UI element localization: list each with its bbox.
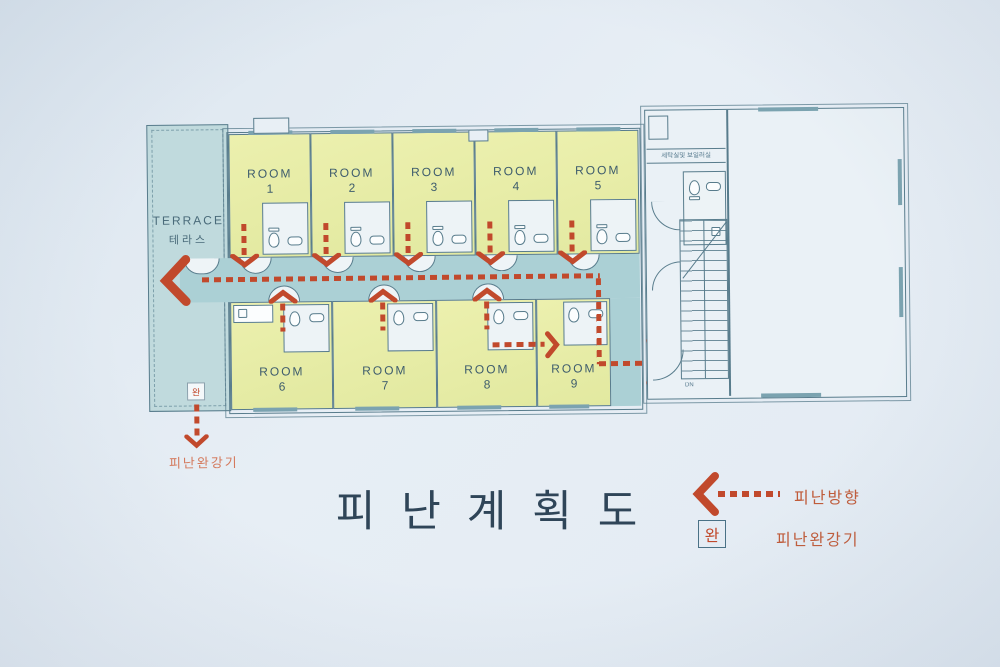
sink-icon (533, 234, 548, 243)
toilet-icon (514, 230, 525, 245)
toilet-icon (689, 180, 700, 195)
toilet-tank-icon (268, 228, 279, 232)
window (899, 267, 904, 317)
toilet-tank-icon (432, 226, 443, 230)
utility-closet (648, 115, 668, 139)
evacuation-path-turn (599, 361, 645, 366)
room-3-exit-arrow-icon (394, 252, 424, 266)
legend-descender-label: 피난완강기 (776, 526, 860, 550)
sink-icon (287, 236, 302, 245)
descender-device-box: 완 (187, 382, 205, 400)
room-1-number: 1 (230, 181, 310, 197)
toilet-icon (493, 309, 504, 324)
sink-icon (615, 233, 630, 242)
room-1-label: ROOM (230, 166, 310, 182)
descender-device-symbol: 완 (192, 385, 200, 398)
sink-icon (413, 312, 428, 321)
toilet-tank-icon (514, 225, 525, 229)
window (549, 404, 589, 408)
room-7-number: 7 (334, 378, 436, 394)
room-2-bathroom (344, 201, 391, 253)
utility-room-label: 세탁실및 보일러실 (647, 148, 726, 164)
legend-direction-label: 피난방향 (794, 484, 861, 508)
room-2-number: 2 (312, 180, 392, 196)
window (494, 128, 538, 132)
room-6-label: ROOM (232, 364, 332, 380)
window (898, 159, 902, 205)
room-2-exit-arrow-icon (312, 253, 342, 267)
legend-direction-arrow-tail (718, 491, 780, 497)
descender-arrow-down-icon (184, 434, 210, 448)
evacuation-plan-photo: { "title": "피 난 계 획 도", "plan": { "terra… (0, 0, 1000, 667)
toilet-icon (596, 229, 607, 244)
room-5-exit-path (569, 220, 574, 252)
legend-direction-arrow-icon (692, 472, 720, 516)
room-7-bathroom (387, 303, 434, 351)
window (253, 407, 297, 411)
room-1-bathroom (262, 202, 309, 254)
toilet-icon (393, 310, 404, 325)
room-8-exit-arrow-icon (472, 287, 502, 301)
room-3-label: ROOM (394, 165, 474, 181)
room-2-exit-path (323, 223, 328, 255)
room-8-exit-path (484, 301, 489, 329)
roof-notch (468, 129, 488, 141)
evacuation-arrow-small-right-icon (544, 331, 560, 359)
toilet-tank-icon (596, 224, 607, 228)
sink-icon (513, 311, 528, 320)
room-4-number: 4 (476, 179, 556, 195)
room-6-number: 6 (232, 379, 332, 395)
room-5-exit-arrow-icon (558, 250, 588, 264)
window (761, 393, 821, 398)
descender-device-label: 피난완강기 (144, 452, 264, 472)
stairs-down-label: DN (685, 382, 694, 388)
room-8-number: 8 (438, 377, 536, 393)
toilet-tank-icon (689, 196, 700, 200)
legend-descender-box: 완 (698, 520, 726, 548)
room-8-label: ROOM (438, 362, 536, 378)
toilet-icon (568, 307, 579, 322)
room-9-number: 9 (538, 376, 610, 392)
room-1-exit-arrow-icon (230, 254, 260, 268)
room-5-bathroom (590, 199, 637, 251)
room-6-bathroom (283, 304, 330, 352)
descender-path (194, 404, 199, 436)
room-4-exit-arrow-icon (476, 251, 506, 265)
window (758, 107, 818, 112)
terrace-label-ko: 테라스 (148, 231, 228, 248)
kitchen-sink-icon (238, 309, 247, 318)
room-6-exit-arrow-icon (268, 289, 298, 303)
window (355, 406, 399, 410)
staircase (679, 219, 729, 379)
evacuation-arrow-left-icon (158, 254, 193, 306)
floor-plan: TERRACE 테라스 ROOM 1 ROOM 2 R (138, 99, 912, 479)
toilet-icon (268, 233, 279, 248)
toilet-icon (350, 232, 361, 247)
room-5-label: ROOM (558, 163, 638, 179)
window (330, 130, 374, 134)
room-3-bathroom (426, 201, 473, 253)
page-title: 피 난 계 획 도 (290, 477, 690, 539)
room-5-number: 5 (558, 178, 638, 194)
room-3-number: 3 (394, 180, 474, 196)
room-4-label: ROOM (476, 164, 556, 180)
window (457, 405, 501, 409)
evacuation-path-room9 (493, 342, 545, 348)
room-2-label: ROOM (312, 165, 392, 181)
toilet-icon (289, 311, 300, 326)
kitchen-counter (233, 305, 273, 323)
roof-bump (253, 117, 289, 133)
legend-descender-symbol: 완 (705, 522, 720, 546)
sink-icon (451, 235, 466, 244)
window (412, 129, 456, 133)
room-7-exit-path (380, 302, 385, 330)
room-4-bathroom (508, 200, 555, 252)
corridor-vertical (610, 298, 641, 406)
toilet-tank-icon (350, 227, 361, 231)
sink-icon (369, 235, 384, 244)
room-4-exit-path (487, 221, 492, 253)
terrace-label-en: TERRACE (148, 213, 228, 228)
evacuation-path-down (596, 278, 602, 364)
sink-icon (309, 313, 324, 322)
legend: 피난방향 완 피난완강기 (690, 460, 930, 570)
room-7-label: ROOM (334, 363, 436, 379)
toilet-icon (432, 231, 443, 246)
room-3-exit-path (405, 222, 410, 254)
room-1-exit-path (241, 224, 246, 256)
window (576, 127, 620, 131)
sink-icon (706, 182, 721, 191)
room-7-exit-arrow-icon (368, 288, 398, 302)
room-6-exit-path (280, 304, 285, 332)
